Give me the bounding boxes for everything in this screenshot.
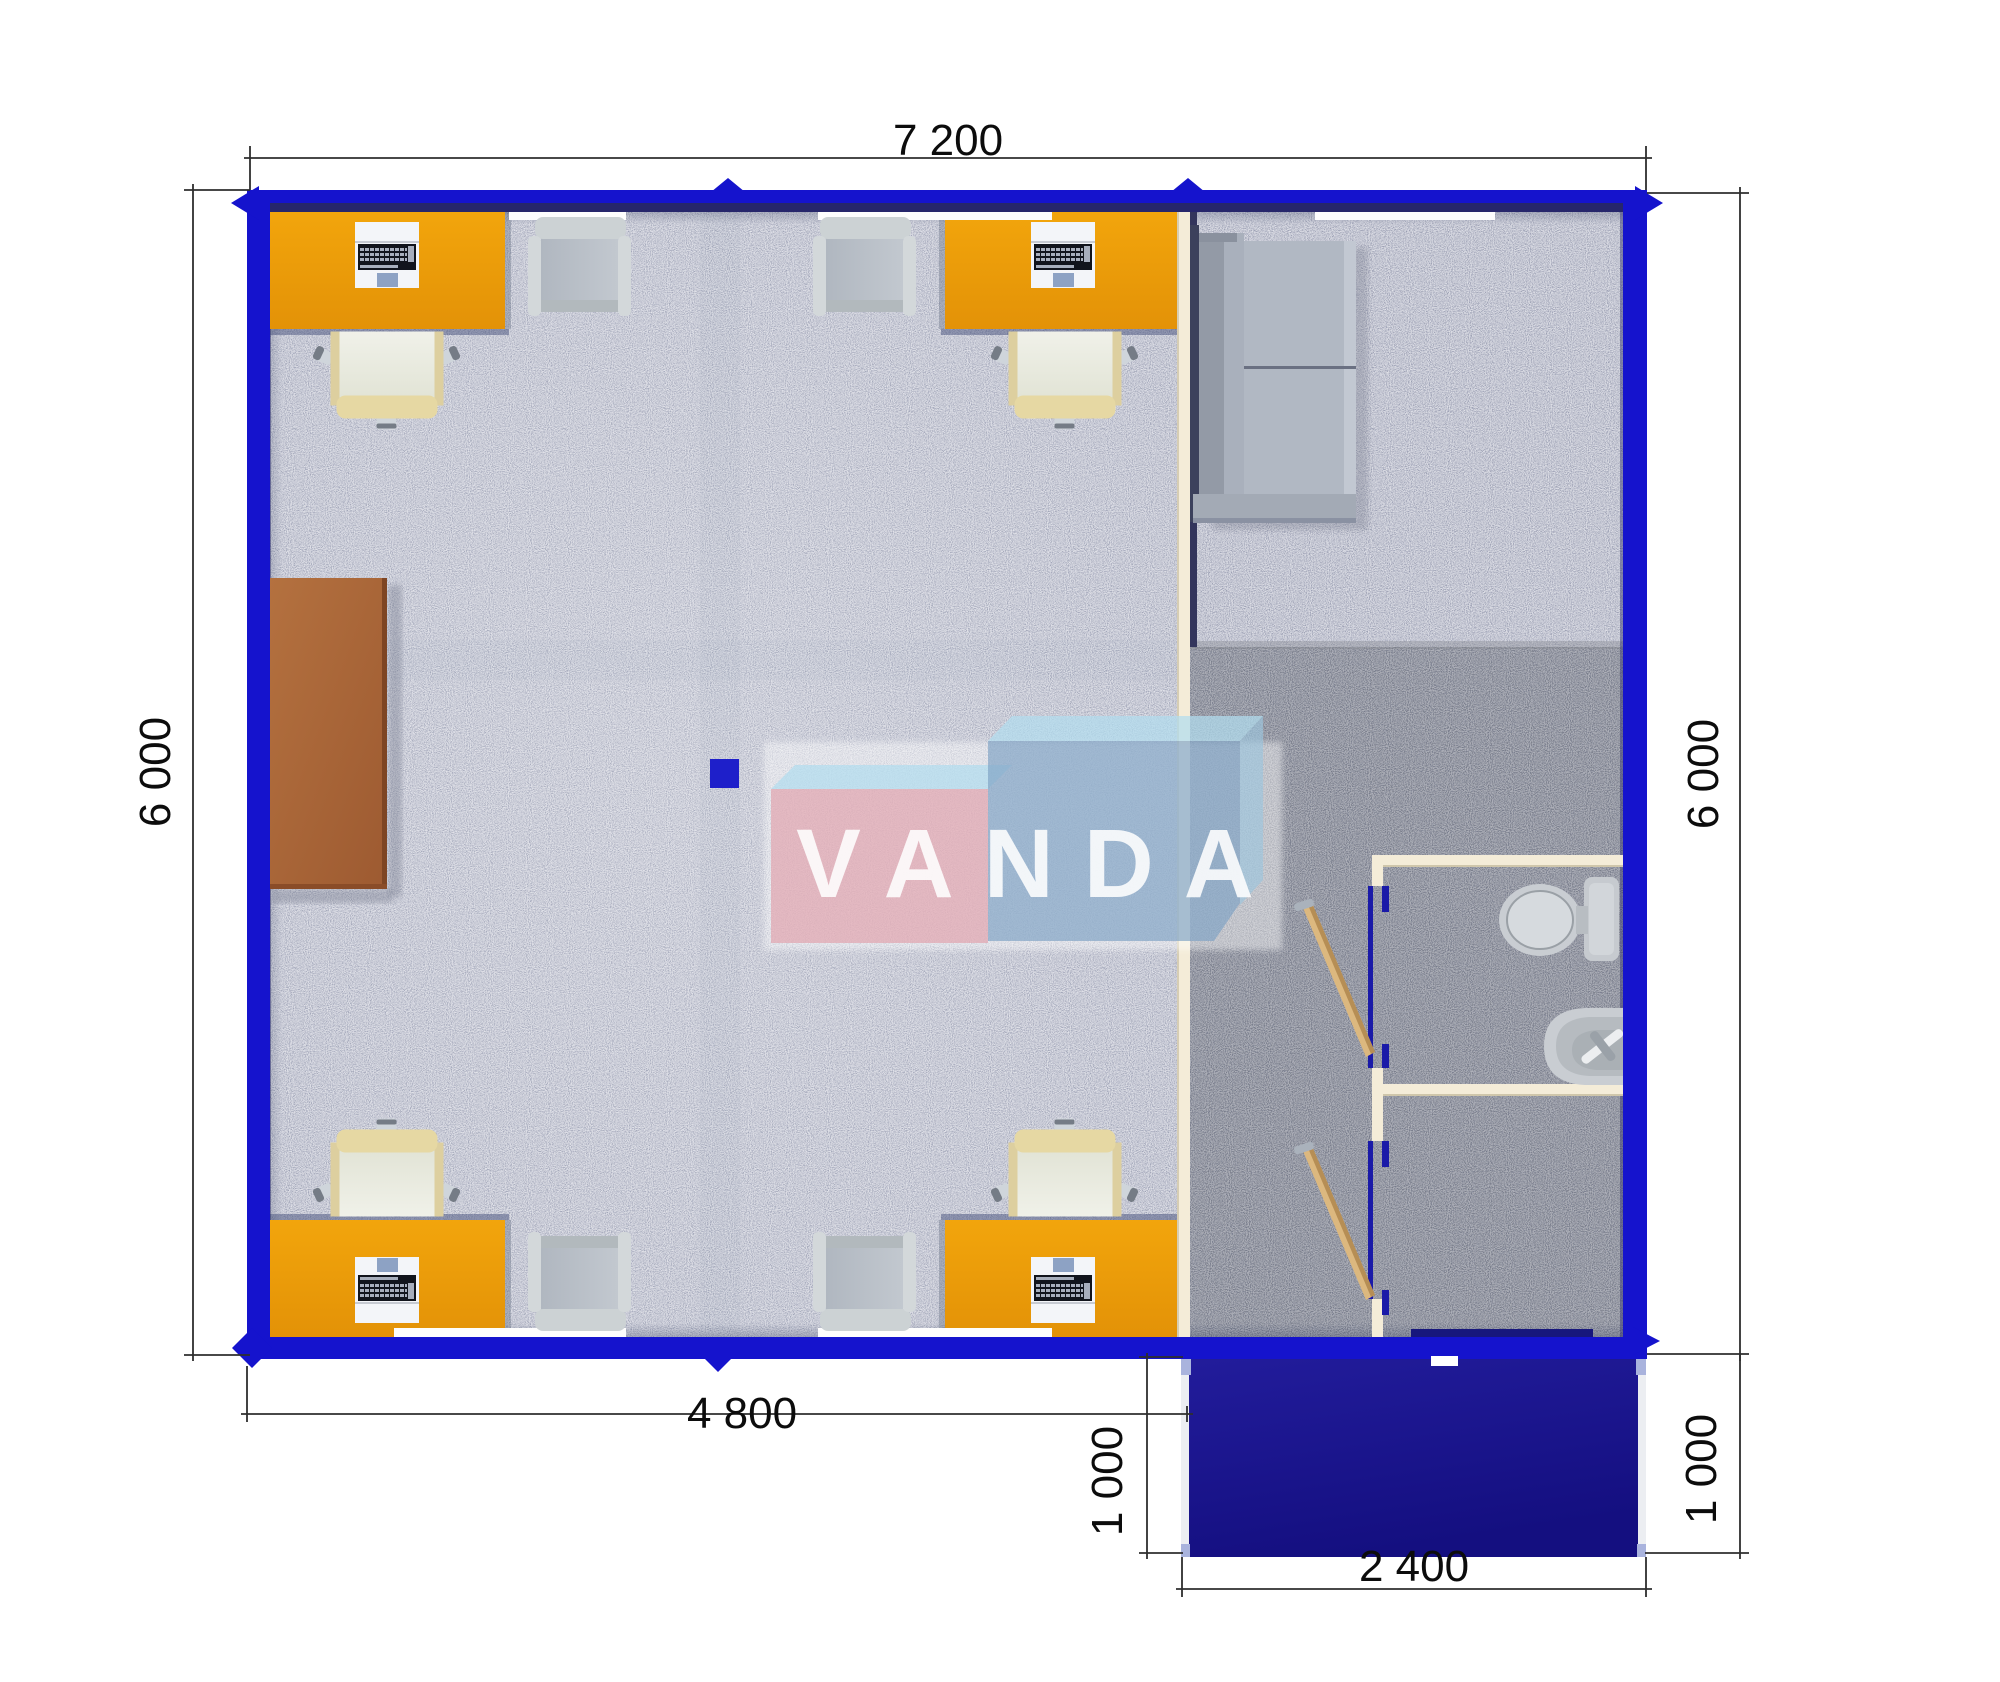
svg-text:VANDA: VANDA	[796, 809, 1284, 918]
svg-text:6 000: 6 000	[1679, 719, 1728, 829]
svg-text:2 400: 2 400	[1359, 1542, 1469, 1591]
svg-text:7 200: 7 200	[893, 116, 1003, 165]
svg-text:1 000: 1 000	[1677, 1414, 1726, 1524]
svg-text:6 000: 6 000	[131, 717, 180, 827]
svg-text:1 000: 1 000	[1083, 1426, 1132, 1536]
svg-text:4 800: 4 800	[687, 1389, 797, 1438]
